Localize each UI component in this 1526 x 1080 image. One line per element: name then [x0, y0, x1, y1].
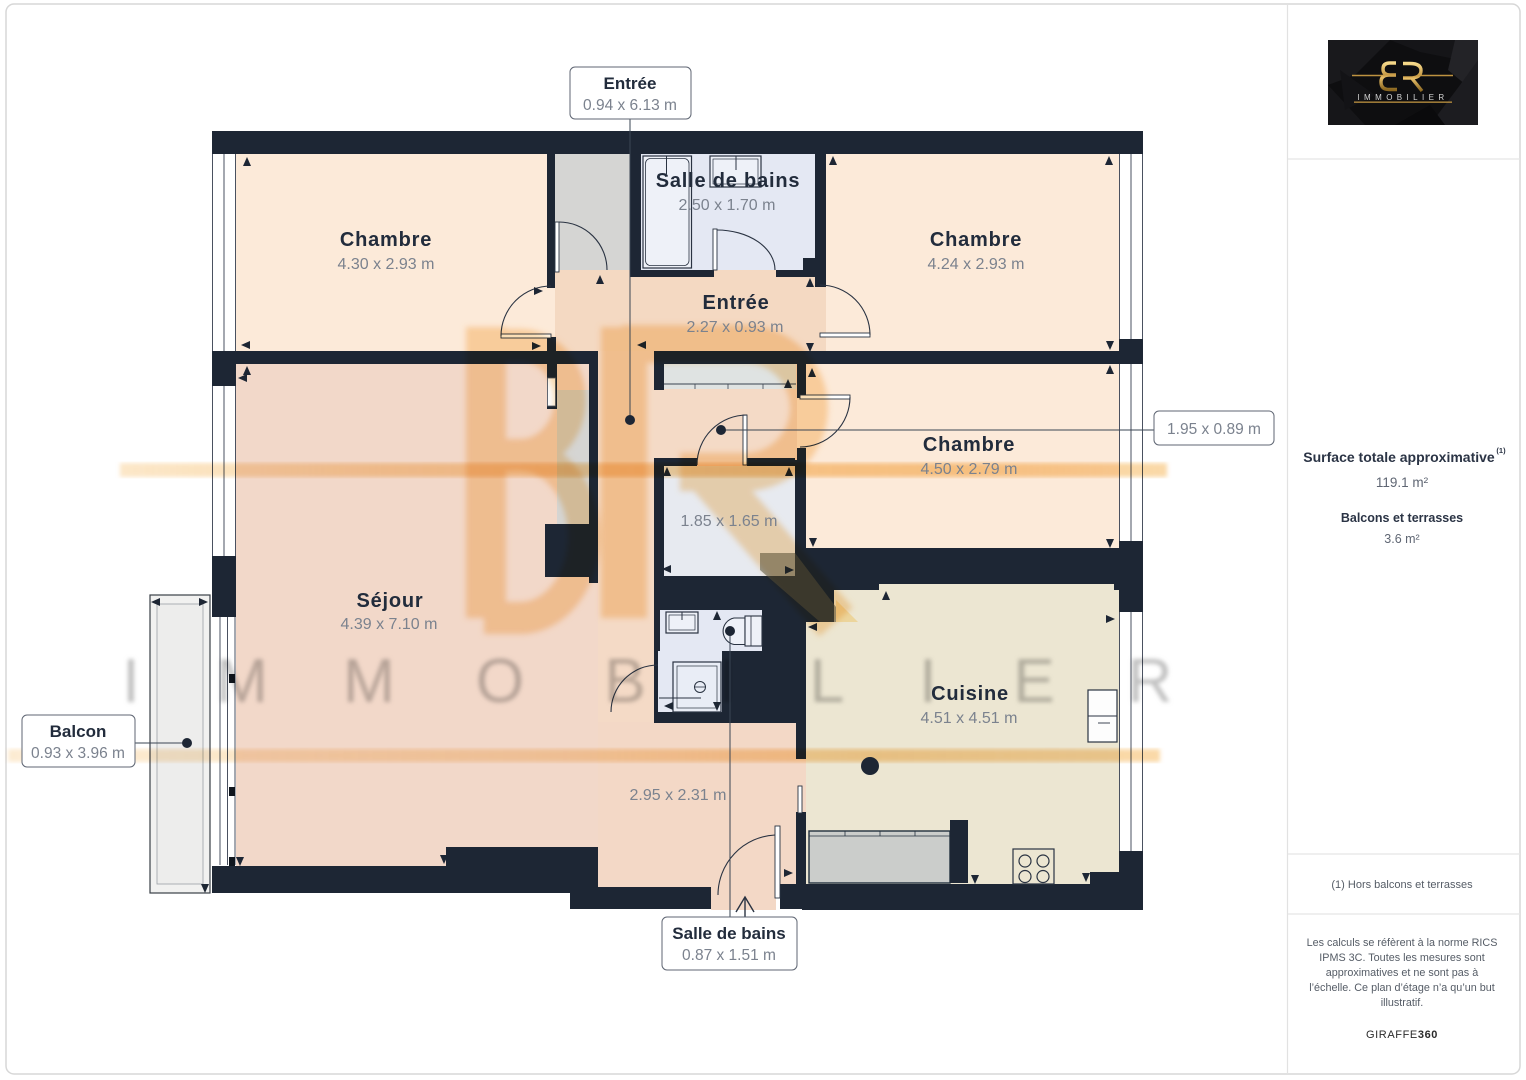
- svg-text:0.94 x 6.13 m: 0.94 x 6.13 m: [583, 97, 677, 114]
- svg-text:Salle de bains: Salle de bains: [672, 924, 785, 943]
- svg-text:B: B: [604, 647, 645, 716]
- svg-text:3.6 m²: 3.6 m²: [1384, 532, 1419, 546]
- svg-text:Chambre: Chambre: [923, 434, 1015, 456]
- svg-text:L: L: [810, 647, 844, 716]
- svg-text:Salle de bains: Salle de bains: [656, 170, 801, 192]
- svg-text:I: I: [919, 647, 936, 716]
- svg-text:M: M: [343, 647, 395, 716]
- svg-text:Chambre: Chambre: [930, 229, 1022, 251]
- svg-text:119.1 m²: 119.1 m²: [1376, 475, 1429, 490]
- svg-text:Entrée: Entrée: [604, 74, 657, 93]
- svg-text:Séjour: Séjour: [356, 590, 423, 612]
- svg-text:2.27 x 0.93 m: 2.27 x 0.93 m: [687, 319, 784, 336]
- svg-text:2.50 x 1.70 m: 2.50 x 1.70 m: [679, 197, 776, 214]
- svg-text:illustratif.: illustratif.: [1381, 997, 1424, 1009]
- svg-text:(1): (1): [1496, 446, 1506, 455]
- svg-text:Les calculs se réfèrent à la n: Les calculs se réfèrent à la norme RICS: [1307, 937, 1498, 949]
- svg-text:E: E: [1013, 647, 1054, 716]
- svg-text:2.95 x 2.31 m: 2.95 x 2.31 m: [630, 787, 727, 804]
- svg-text:1.95 x 0.89 m: 1.95 x 0.89 m: [1167, 421, 1261, 438]
- svg-text:Balcons et terrasses: Balcons et terrasses: [1341, 511, 1463, 525]
- svg-text:0.87 x 1.51 m: 0.87 x 1.51 m: [682, 947, 776, 964]
- svg-text:GIRAFFE360: GIRAFFE360: [1366, 1029, 1438, 1041]
- svg-text:Entrée: Entrée: [702, 292, 769, 314]
- svg-text:4.50 x 2.79 m: 4.50 x 2.79 m: [921, 461, 1018, 478]
- svg-text:M: M: [216, 647, 268, 716]
- svg-text:O: O: [476, 647, 524, 716]
- svg-text:(1) Hors balcons et terrasses: (1) Hors balcons et terrasses: [1331, 879, 1473, 891]
- svg-text:4.51 x 4.51 m: 4.51 x 4.51 m: [921, 710, 1018, 727]
- svg-text:approximatives et ne sont pas: approximatives et ne sont pas à: [1326, 967, 1478, 979]
- svg-text:Cuisine: Cuisine: [931, 683, 1009, 705]
- svg-text:I: I: [122, 647, 139, 716]
- svg-text:l’échelle. Ce plan d’étage n’a: l’échelle. Ce plan d’étage n’a qu’un but: [1309, 982, 1494, 994]
- svg-text:R: R: [1128, 647, 1173, 716]
- svg-text:4.30 x 2.93 m: 4.30 x 2.93 m: [338, 256, 435, 273]
- svg-text:0.93 x 3.96 m: 0.93 x 3.96 m: [31, 745, 125, 762]
- svg-text:IMMOBILIER: IMMOBILIER: [1357, 93, 1448, 102]
- svg-text:IPMS 3C. Toutes les mesures so: IPMS 3C. Toutes les mesures sont: [1319, 952, 1484, 964]
- svg-text:I: I: [718, 647, 735, 716]
- svg-text:4.39 x 7.10 m: 4.39 x 7.10 m: [341, 616, 438, 633]
- svg-text:Balcon: Balcon: [50, 722, 107, 741]
- svg-text:Chambre: Chambre: [340, 229, 432, 251]
- svg-text:4.24 x 2.93 m: 4.24 x 2.93 m: [928, 256, 1025, 273]
- svg-text:1.85 x 1.65 m: 1.85 x 1.65 m: [681, 513, 778, 530]
- svg-text:Surface totale approximative: Surface totale approximative: [1303, 449, 1495, 465]
